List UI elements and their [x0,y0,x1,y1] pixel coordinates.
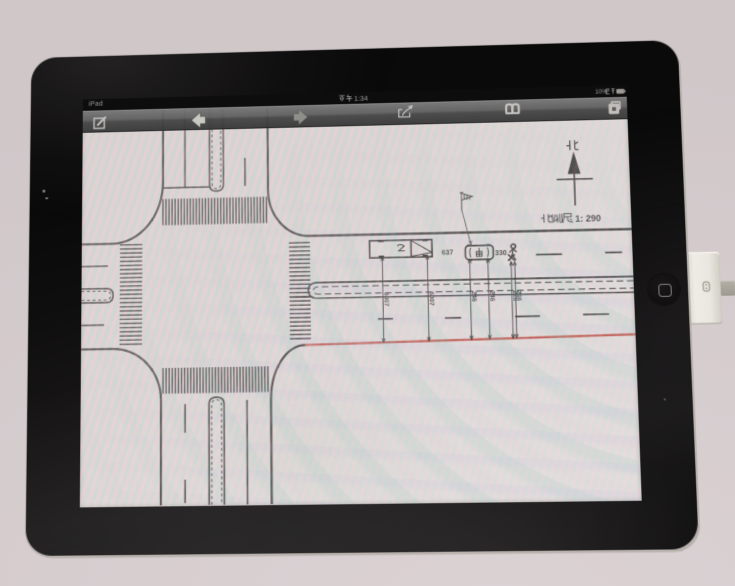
svg-text:236: 236 [515,290,522,301]
svg-text:246: 246 [488,291,495,302]
svg-text:246: 246 [470,291,477,302]
svg-text:1: 290: 1: 290 [575,213,601,224]
svg-text:6007: 6007 [382,292,389,307]
svg-text:6007: 6007 [427,291,434,306]
svg-text:330: 330 [495,250,507,258]
svg-text:637: 637 [442,249,454,257]
